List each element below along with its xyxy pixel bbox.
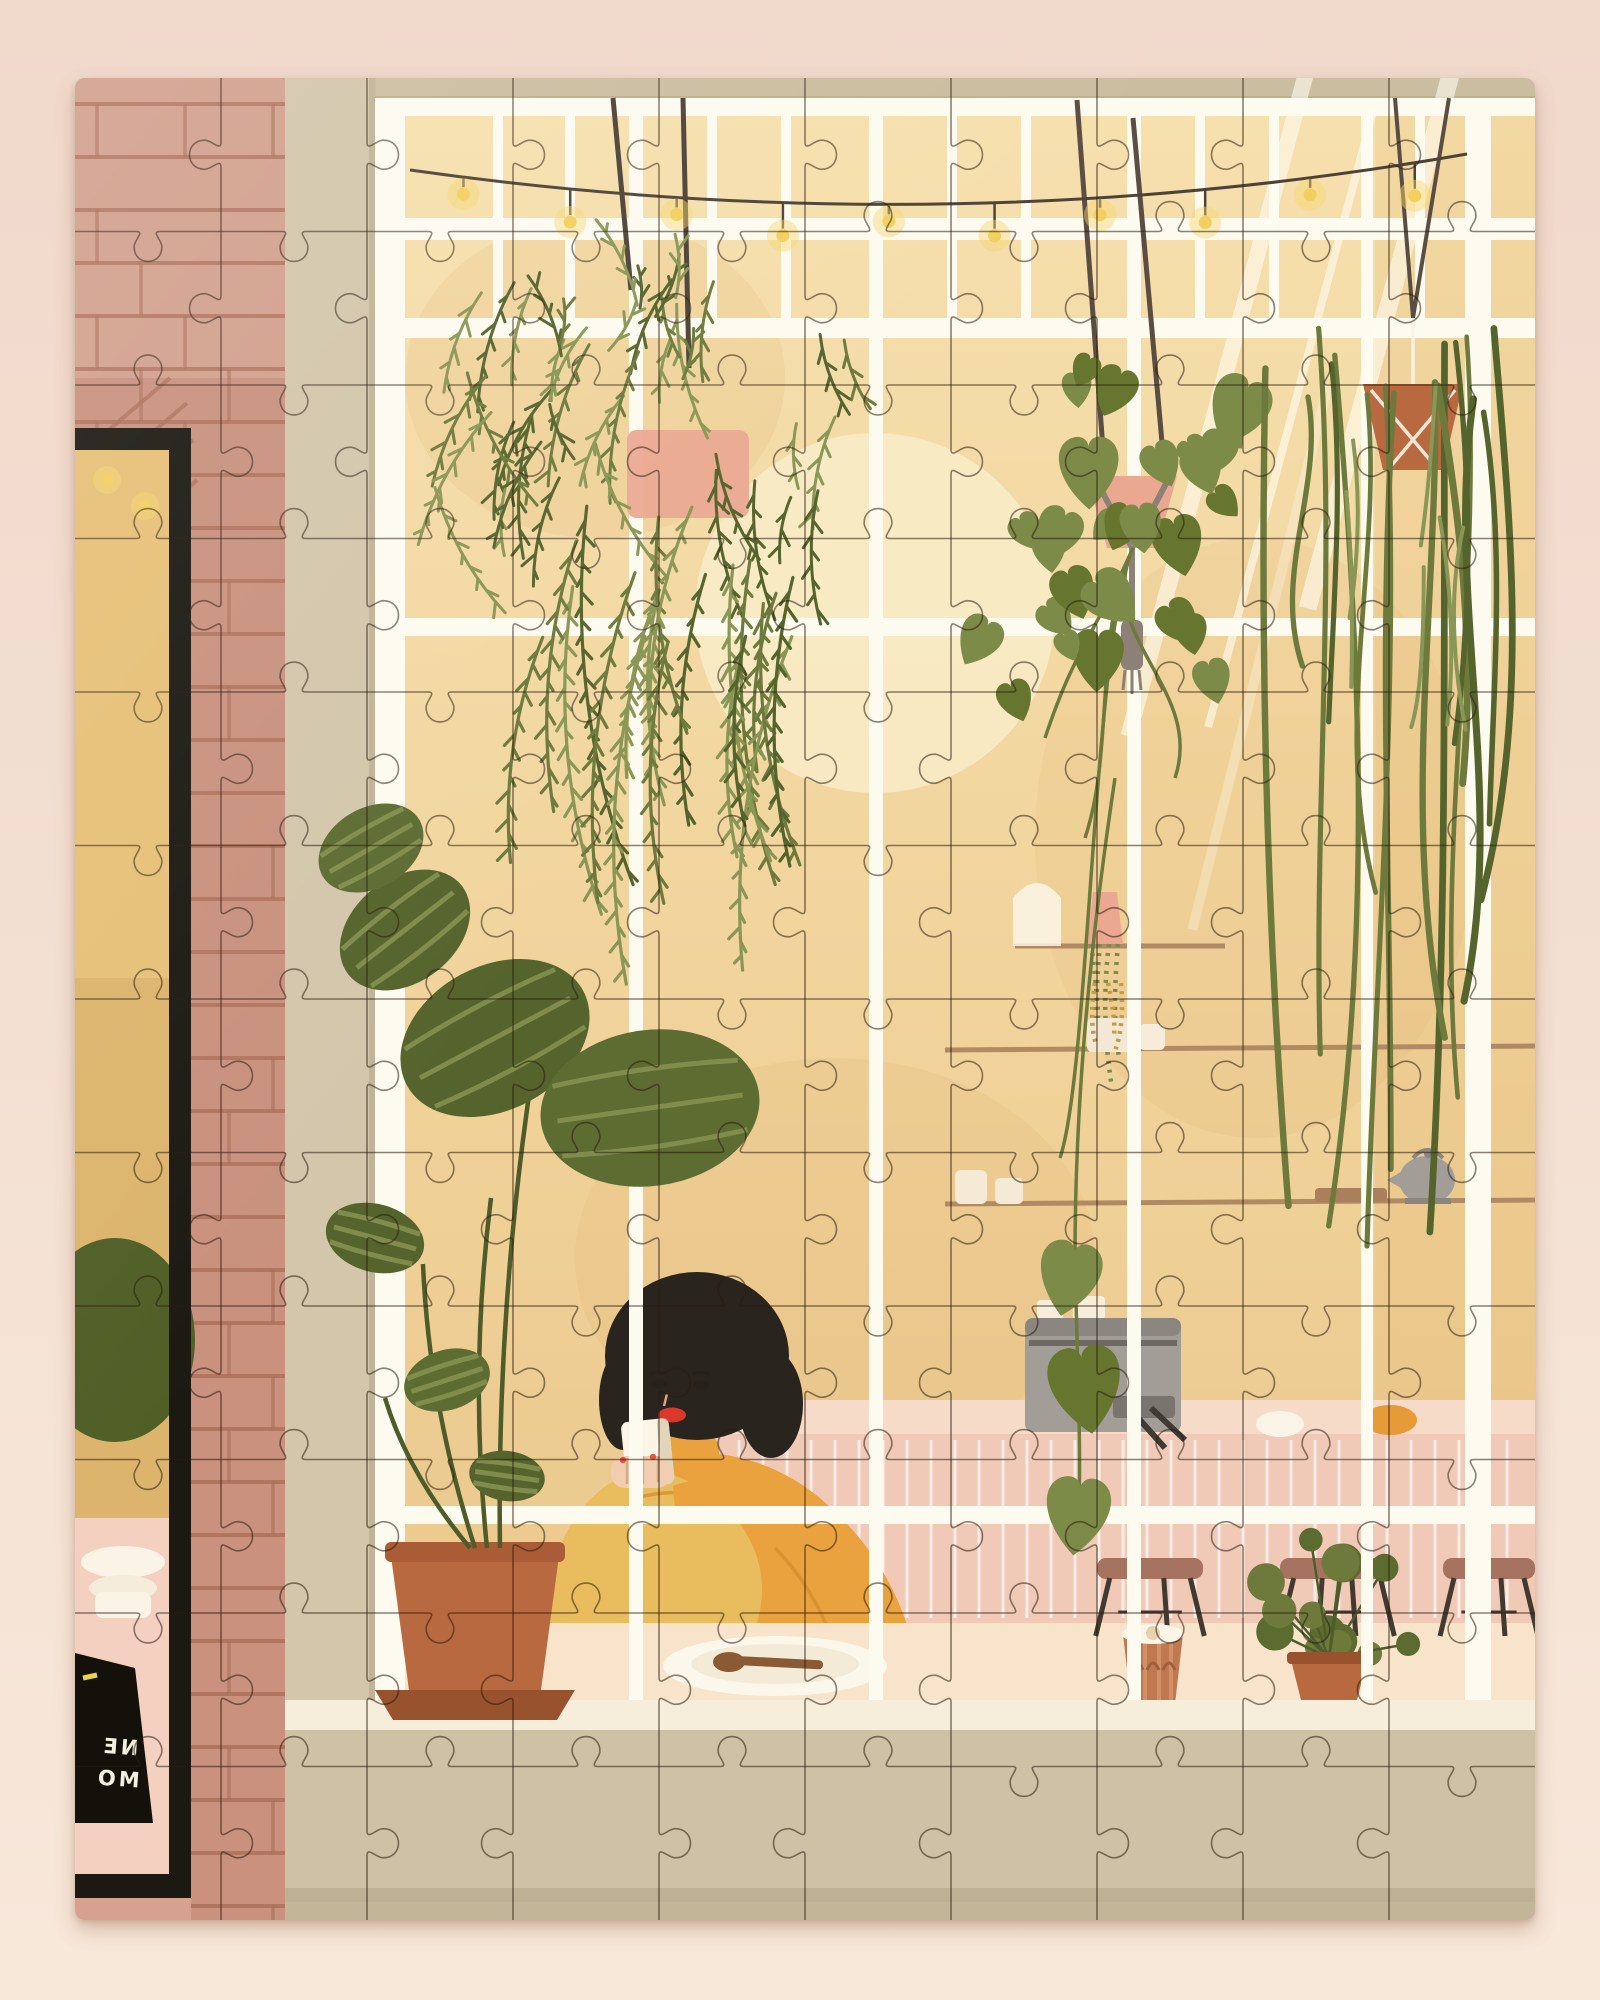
jigsaw-puzzle: NE MO bbox=[75, 78, 1535, 1920]
photo-backdrop: NE MO bbox=[0, 0, 1600, 2000]
